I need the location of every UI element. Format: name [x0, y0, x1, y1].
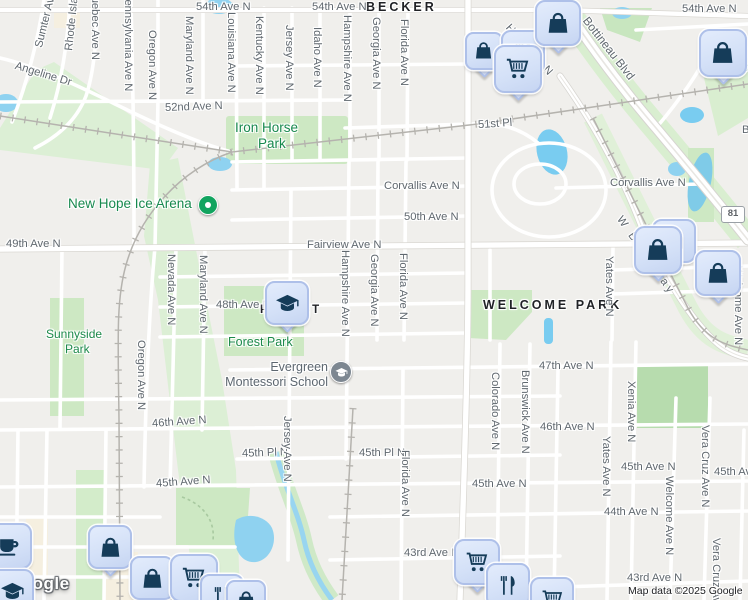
street-label: Hampshire Ave N: [339, 250, 351, 337]
street-label: Vera Cruz Ave N: [699, 425, 711, 508]
shopping-bag-icon: [140, 566, 165, 591]
school-pin[interactable]: [0, 569, 34, 600]
street-label: Louisiana Ave N: [225, 12, 237, 93]
street-label: 44th Ave N: [604, 506, 659, 518]
coffee-pin[interactable]: [0, 523, 32, 569]
street-label: 49th Ave N: [6, 238, 61, 250]
park-label[interactable]: Park: [258, 136, 286, 151]
park-label[interactable]: Sunnyside: [46, 327, 102, 341]
shopping-cart-icon: [540, 587, 565, 600]
poi-label-school[interactable]: Evergreen Montessori School: [200, 360, 328, 390]
street-label: B: [742, 124, 748, 136]
restaurant-icon: [496, 573, 521, 598]
shopping-bag-icon: [705, 260, 731, 286]
shopping-bag-pin[interactable]: [535, 0, 581, 46]
street-label: 54th Ave N: [312, 1, 367, 13]
street-label: 54th Ave N: [682, 3, 737, 15]
school-label-line1: Evergreen: [200, 360, 328, 375]
street-label: 48th Ave N: [216, 299, 271, 311]
street-label: Florida Ave N: [397, 253, 409, 320]
street-label: 43rd Ave N: [404, 547, 459, 559]
map-canvas[interactable]: BECKER FOREST WELCOME PARK 54th Ave N 54…: [0, 0, 748, 600]
street-label: Florida Ave N: [398, 19, 410, 86]
street-label: Florida Ave N: [399, 450, 411, 517]
shopping-bag-icon: [644, 236, 671, 263]
neighborhood-label: BECKER: [366, 0, 437, 14]
street-label: Colorado Ave N: [489, 372, 501, 450]
street-label: 43rd Ave N: [627, 572, 682, 584]
street-label: Jersey Ave N: [283, 25, 295, 91]
shopping-bag-pin[interactable]: [88, 525, 132, 569]
street-label: 45th Ave N: [714, 466, 748, 478]
street-label: 52nd Ave N: [165, 100, 223, 114]
graduation-cap-icon: [275, 291, 300, 316]
shopping-bag-pin[interactable]: [695, 250, 741, 296]
park-label[interactable]: Park: [65, 342, 90, 356]
ice-arena-marker[interactable]: [198, 195, 218, 215]
street-label: Georgia Ave N: [370, 17, 382, 90]
park-label[interactable]: Forest Park: [228, 335, 293, 349]
shopping-cart-pin[interactable]: [530, 577, 574, 600]
graduation-cap-icon: [335, 366, 348, 379]
street-label: Quebec Ave N: [89, 0, 101, 60]
street-label: 54th Ave N: [196, 1, 251, 13]
street-label: Hampshire Ave N: [341, 15, 353, 102]
coffee-icon: [0, 533, 22, 559]
street-label: Yates Ave N: [600, 436, 612, 497]
shopping-bag-pin[interactable]: [226, 580, 266, 600]
street-label: Welcome Ave N: [663, 476, 675, 555]
street-label: 47th Ave N: [539, 360, 594, 372]
graduation-cap-icon: [0, 579, 24, 600]
shopping-bag-icon: [709, 39, 736, 66]
shopping-bag-pin[interactable]: [130, 556, 174, 600]
street-label: Corvallis Ave N: [610, 177, 686, 189]
route-81-shield: 81: [721, 206, 745, 223]
street-label: 46th Ave N: [540, 421, 595, 433]
street-label: Kentucky Ave N: [253, 16, 265, 95]
shopping-bag-icon: [545, 10, 571, 36]
shopping-bag-pin[interactable]: [634, 226, 682, 274]
poi-label-ice-arena[interactable]: New Hope Ice Arena: [68, 196, 192, 211]
street-label: 45th Ave N: [472, 478, 527, 490]
street-label: 45th Ave N: [621, 461, 676, 473]
street-label: Corvallis Ave N: [384, 180, 460, 192]
street-label: Idaho Ave N: [311, 27, 323, 88]
street-label: Oregon Ave N: [135, 340, 147, 410]
street-label: Yates Ave N: [603, 256, 615, 317]
shopping-cart-pin[interactable]: [494, 45, 542, 93]
street-label: Brunswick Ave N: [519, 370, 531, 454]
street-label: Maryland Ave N: [183, 16, 195, 95]
school-pin[interactable]: [265, 281, 309, 325]
shopping-bag-icon: [98, 535, 123, 560]
school-marker[interactable]: [330, 361, 352, 383]
shopping-cart-icon: [504, 55, 531, 82]
map-attribution: Map data ©2025 Google: [628, 585, 743, 597]
shopping-bag-icon: [235, 589, 257, 600]
street-label: Xenia Ave N: [625, 381, 637, 442]
street-label: Oregon Ave N: [146, 30, 158, 100]
street-label: Maryland Ave N: [197, 255, 209, 334]
school-label-line2: Montessori School: [200, 375, 328, 390]
street-label: Georgia Ave N: [368, 254, 380, 327]
restaurant-pin[interactable]: [486, 563, 530, 600]
street-label: Pennsylvania Ave N: [122, 0, 134, 91]
street-label: Nevada Ave N: [165, 254, 177, 325]
street-label: Jersey Ave N: [281, 416, 293, 482]
street-label: 51st Pl: [478, 117, 513, 131]
shopping-bag-icon: [473, 40, 494, 61]
neighborhood-label: WELCOME PARK: [483, 298, 622, 312]
park-label[interactable]: Iron Horse: [235, 120, 298, 135]
shopping-bag-pin[interactable]: [699, 29, 747, 77]
street-label: 50th Ave N: [404, 211, 459, 223]
